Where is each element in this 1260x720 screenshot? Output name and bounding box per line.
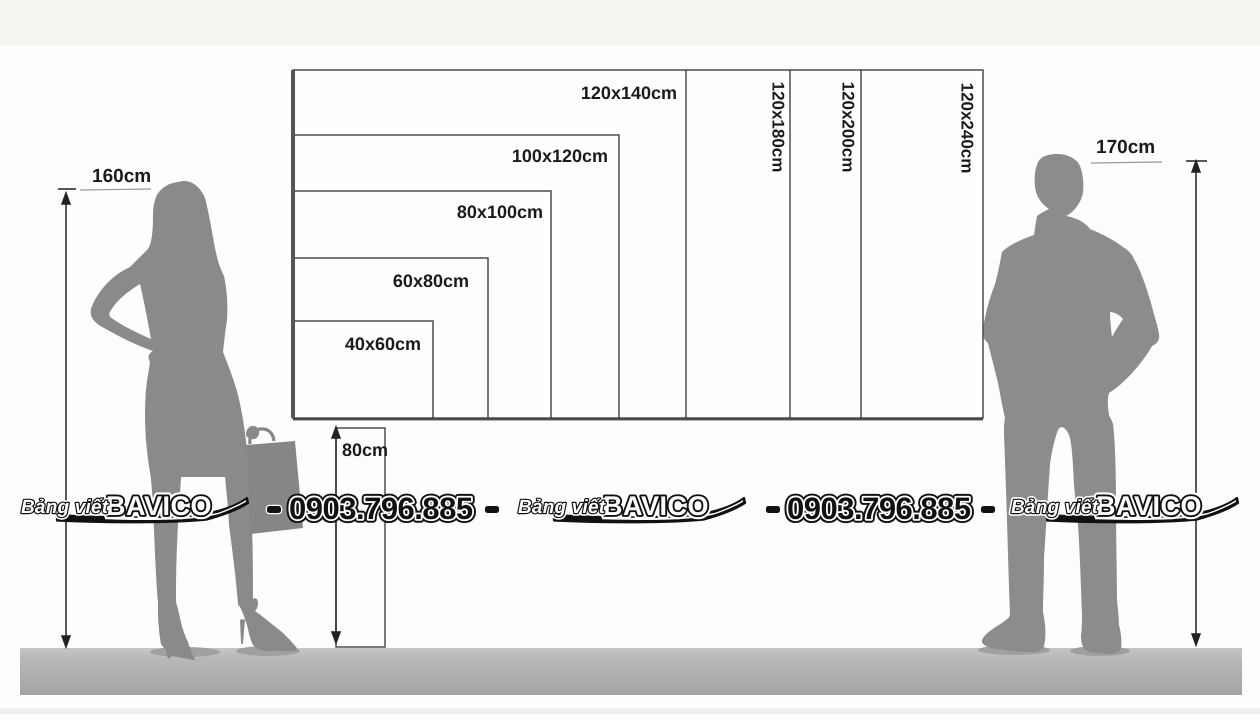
svg-text:BAVICO: BAVICO	[603, 491, 709, 521]
svg-text:60x80cm: 60x80cm	[393, 271, 469, 291]
svg-text:Bảng viết: Bảng viết	[518, 497, 606, 518]
svg-text:80cm: 80cm	[342, 440, 388, 460]
svg-text:Bảng viết: Bảng viết	[21, 497, 109, 518]
svg-text:120x140cm: 120x140cm	[581, 83, 677, 103]
svg-text:120x180cm: 120x180cm	[769, 82, 788, 173]
svg-text:40x60cm: 40x60cm	[345, 334, 421, 354]
svg-text:120x240cm: 120x240cm	[958, 83, 977, 174]
svg-text:Bảng viết: Bảng viết	[1011, 497, 1099, 518]
svg-text:120x200cm: 120x200cm	[839, 82, 858, 173]
svg-text:0903.796.885: 0903.796.885	[787, 491, 971, 526]
svg-text:BAVICO: BAVICO	[1096, 491, 1202, 521]
svg-text:0903.796.885: 0903.796.885	[289, 491, 473, 526]
svg-text:100x120cm: 100x120cm	[512, 146, 608, 166]
svg-text:80x100cm: 80x100cm	[457, 202, 543, 222]
svg-text:BAVICO: BAVICO	[106, 491, 212, 521]
svg-text:160cm: 160cm	[92, 166, 151, 187]
svg-text:170cm: 170cm	[1096, 137, 1155, 158]
